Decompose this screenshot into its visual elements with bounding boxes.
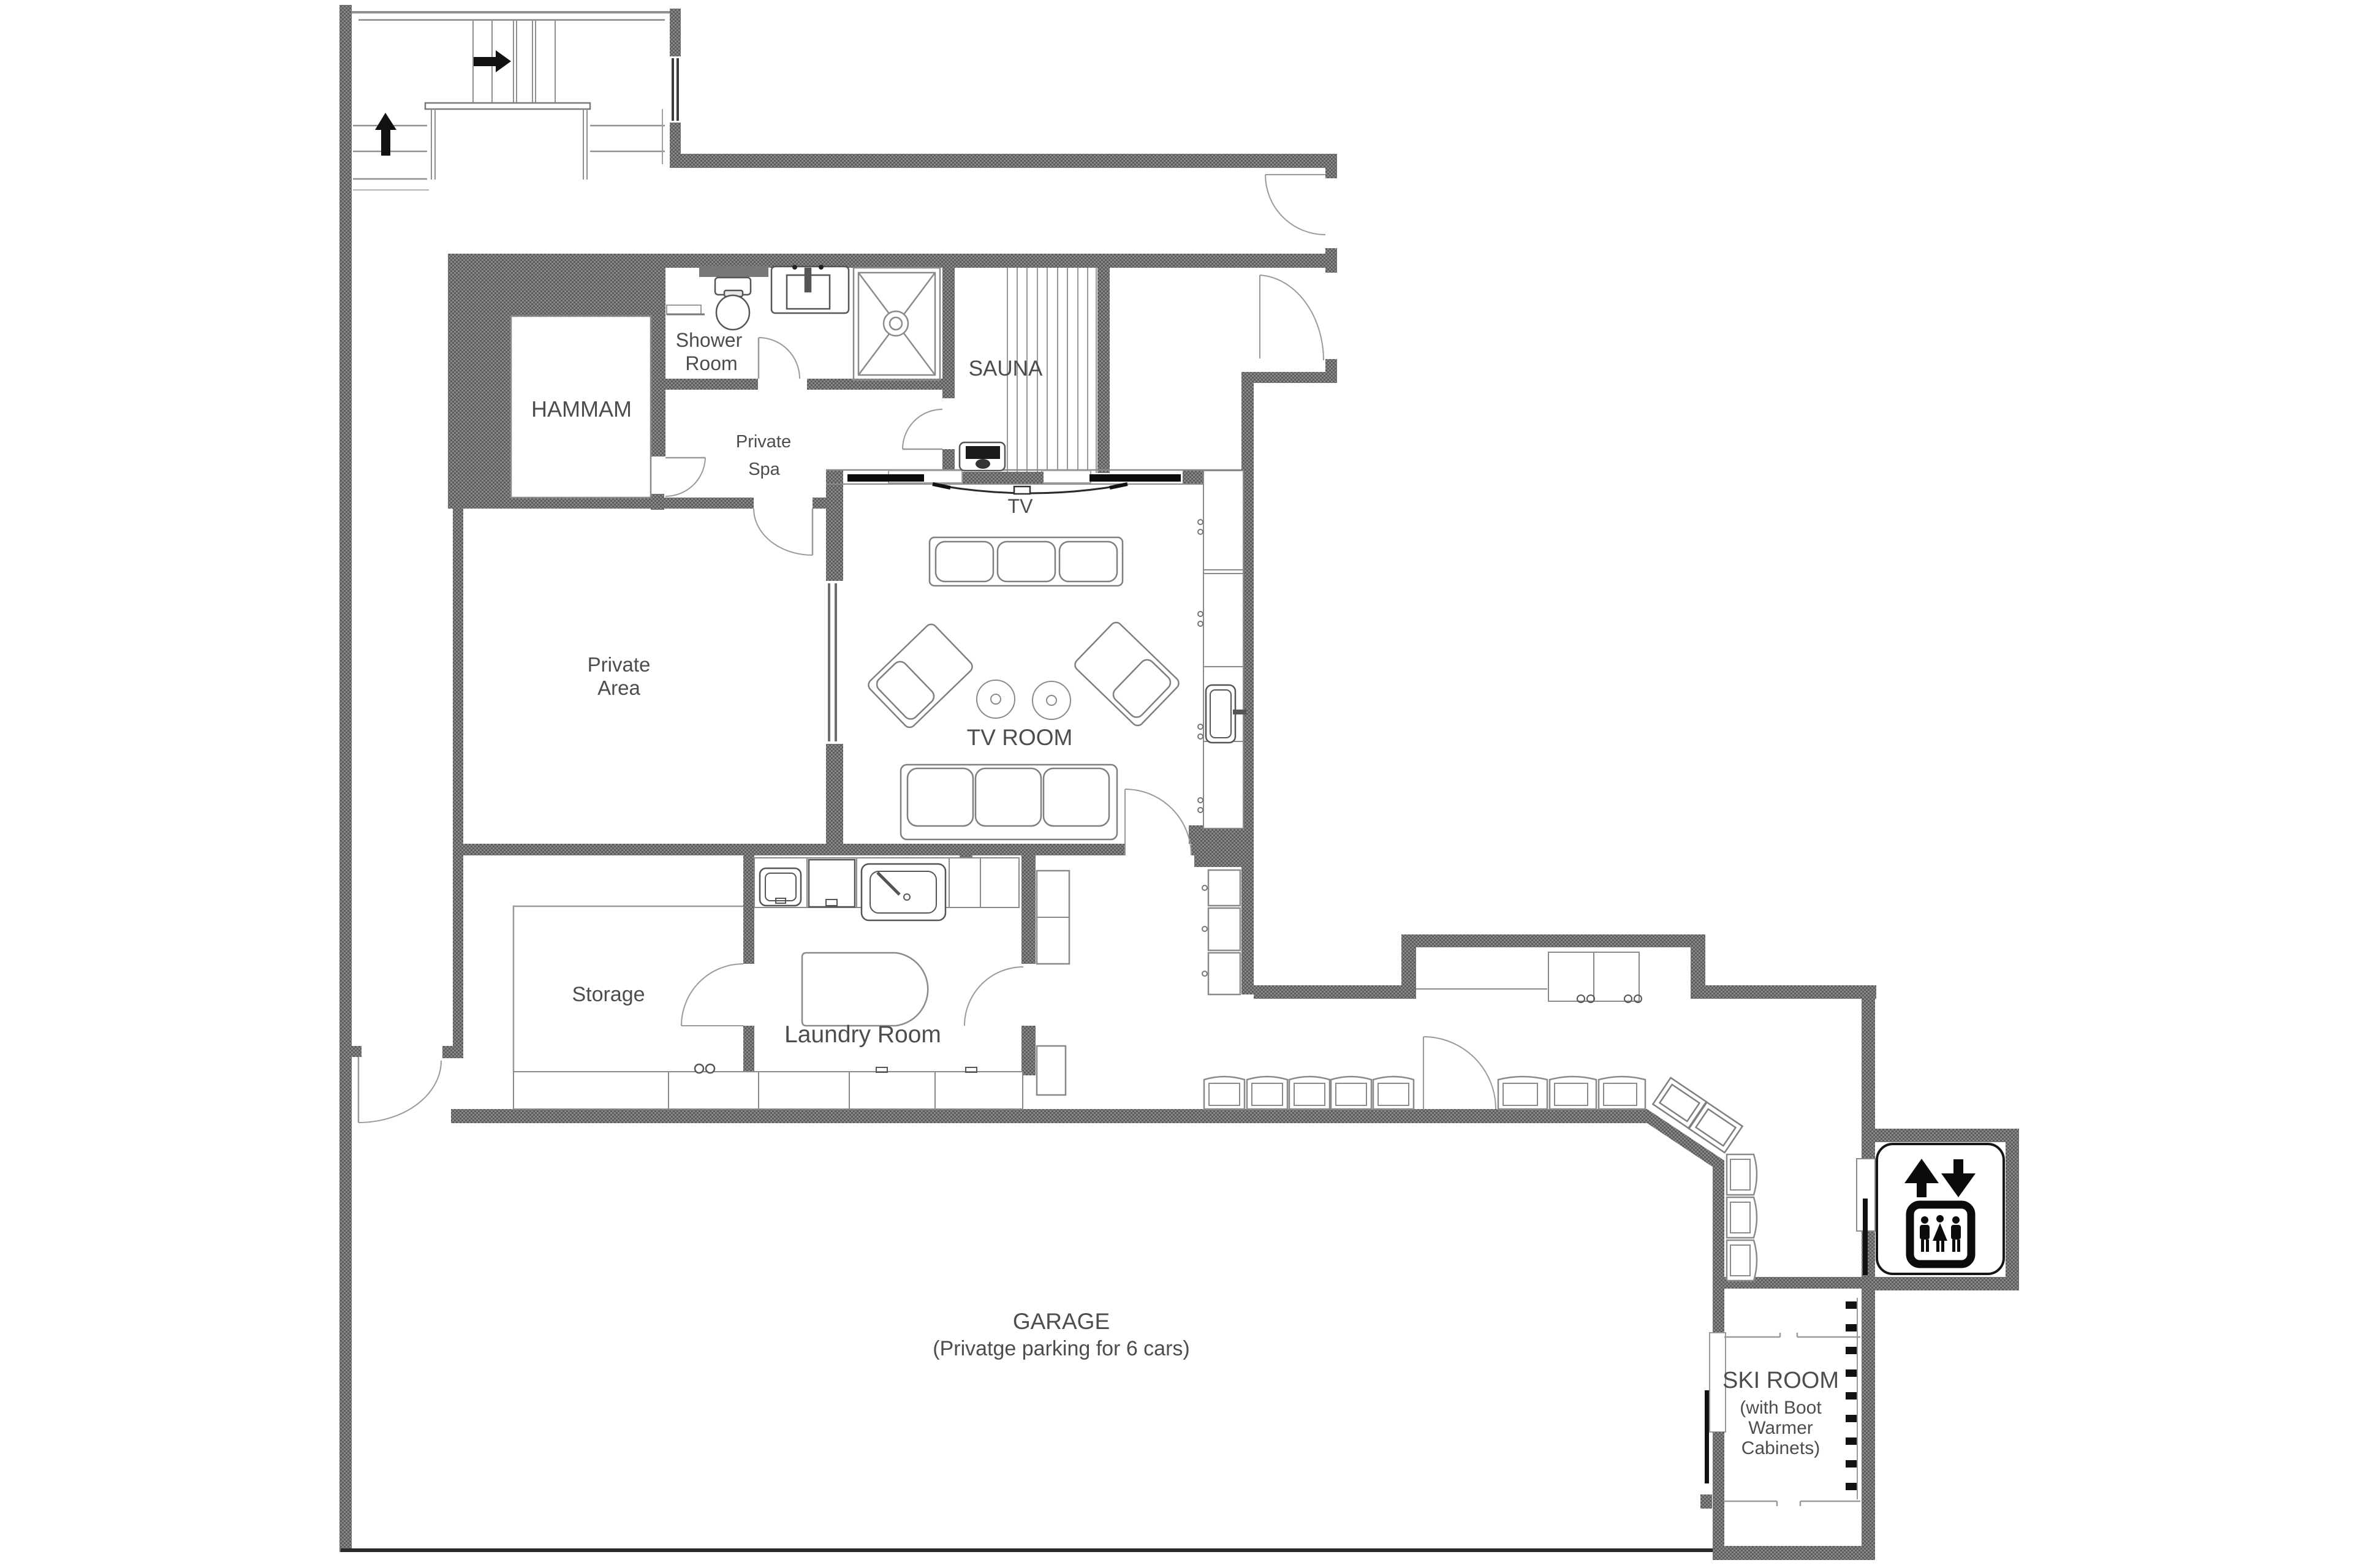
svg-text:Warmer: Warmer	[1748, 1418, 1813, 1438]
svg-text:Area: Area	[597, 676, 640, 699]
svg-text:(with Boot: (with Boot	[1740, 1398, 1822, 1418]
svg-text:TV ROOM: TV ROOM	[967, 725, 1073, 750]
svg-text:(Privatge parking for 6 cars): (Privatge parking for 6 cars)	[933, 1337, 1190, 1360]
svg-text:Room: Room	[685, 352, 737, 374]
svg-text:SKI ROOM: SKI ROOM	[1722, 1368, 1839, 1393]
svg-text:Private: Private	[736, 432, 791, 452]
svg-text:Spa: Spa	[748, 460, 780, 479]
svg-text:Laundry Room: Laundry Room	[784, 1021, 941, 1048]
svg-text:Storage: Storage	[572, 983, 645, 1006]
svg-text:SAUNA: SAUNA	[969, 357, 1043, 381]
svg-text:Cabinets): Cabinets)	[1741, 1438, 1820, 1458]
svg-text:TV: TV	[1008, 495, 1034, 517]
svg-text:GARAGE: GARAGE	[1013, 1309, 1110, 1334]
svg-text:HAMMAM: HAMMAM	[531, 396, 632, 422]
svg-text:Shower: Shower	[676, 329, 743, 351]
svg-text:Private: Private	[588, 653, 651, 676]
